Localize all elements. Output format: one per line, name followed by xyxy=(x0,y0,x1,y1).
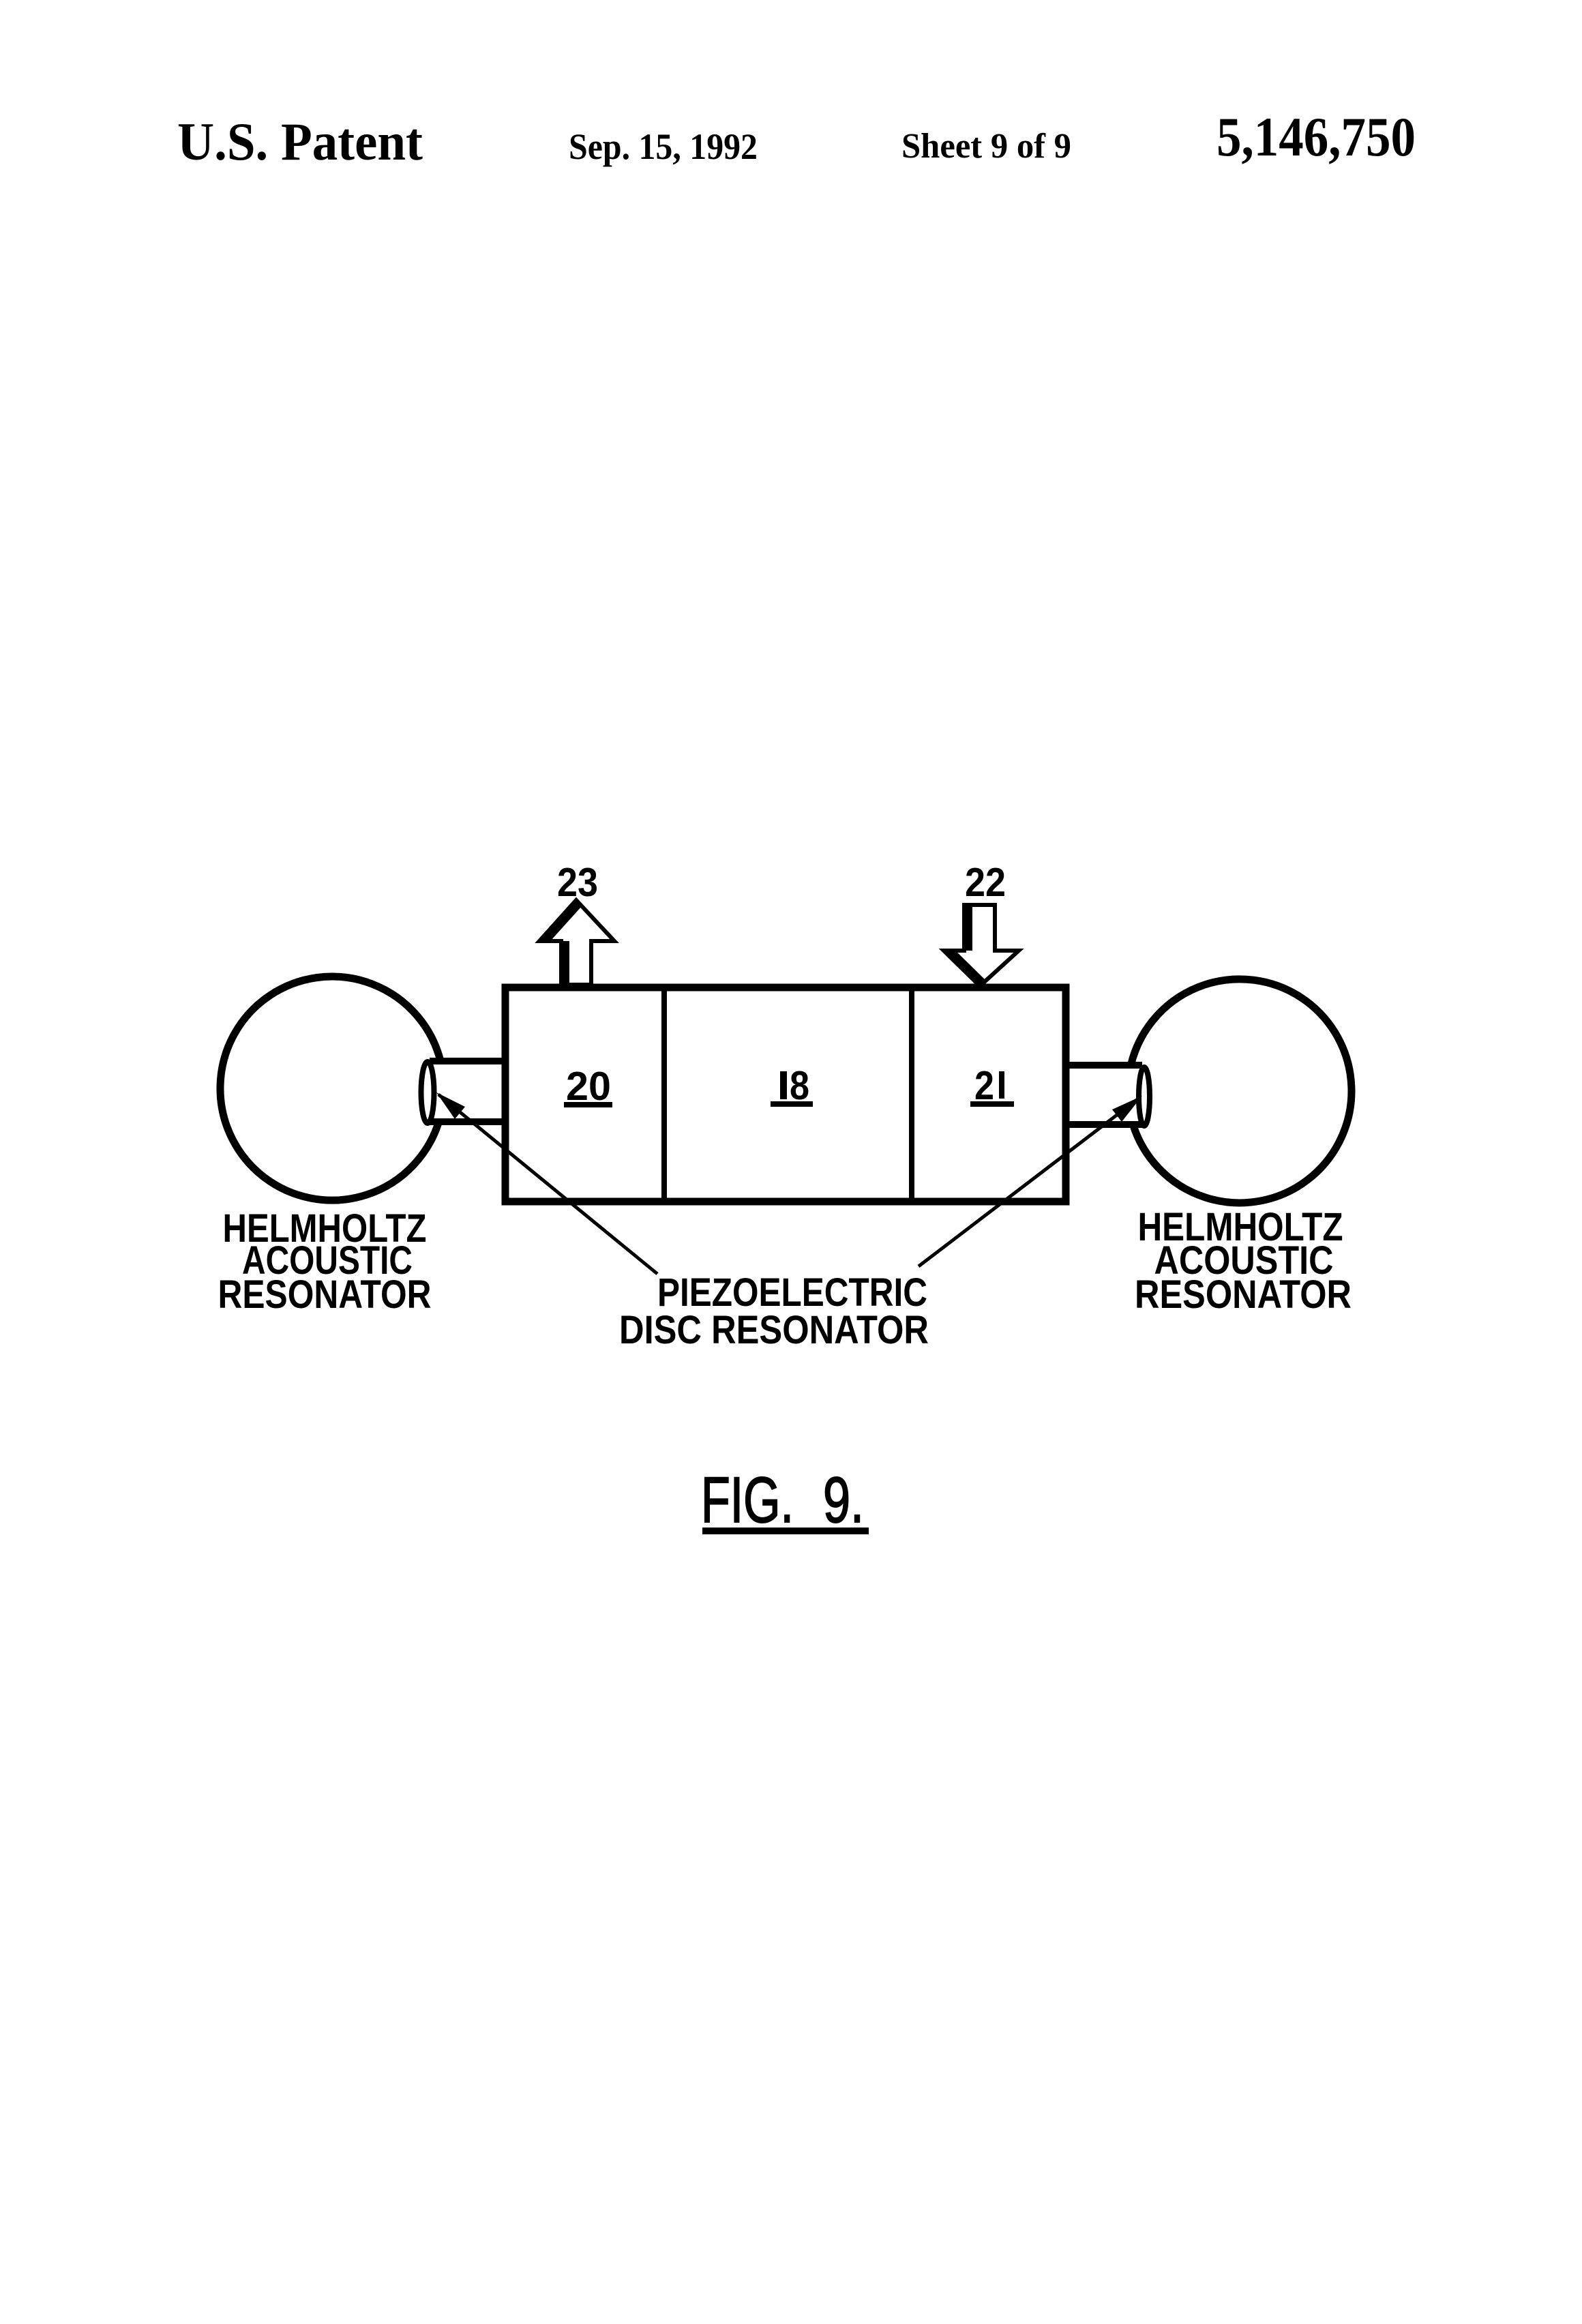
svg-text:Sep. 15, 1992: Sep. 15, 1992 xyxy=(569,126,758,167)
svg-text:Sheet 9 of 9: Sheet 9 of 9 xyxy=(901,127,1071,166)
svg-text:FIG.: FIG. xyxy=(701,1464,794,1536)
svg-text:DISC RESONATOR: DISC RESONATOR xyxy=(619,1308,929,1352)
svg-text:9.: 9. xyxy=(823,1464,864,1536)
svg-text:23: 23 xyxy=(557,860,598,905)
svg-text:RESONATOR: RESONATOR xyxy=(1135,1272,1352,1317)
svg-text:RESONATOR: RESONATOR xyxy=(218,1272,432,1317)
svg-text:22: 22 xyxy=(965,860,1006,905)
svg-text:5,146,750: 5,146,750 xyxy=(1217,106,1416,168)
svg-text:U.S. Patent: U.S. Patent xyxy=(177,112,423,171)
